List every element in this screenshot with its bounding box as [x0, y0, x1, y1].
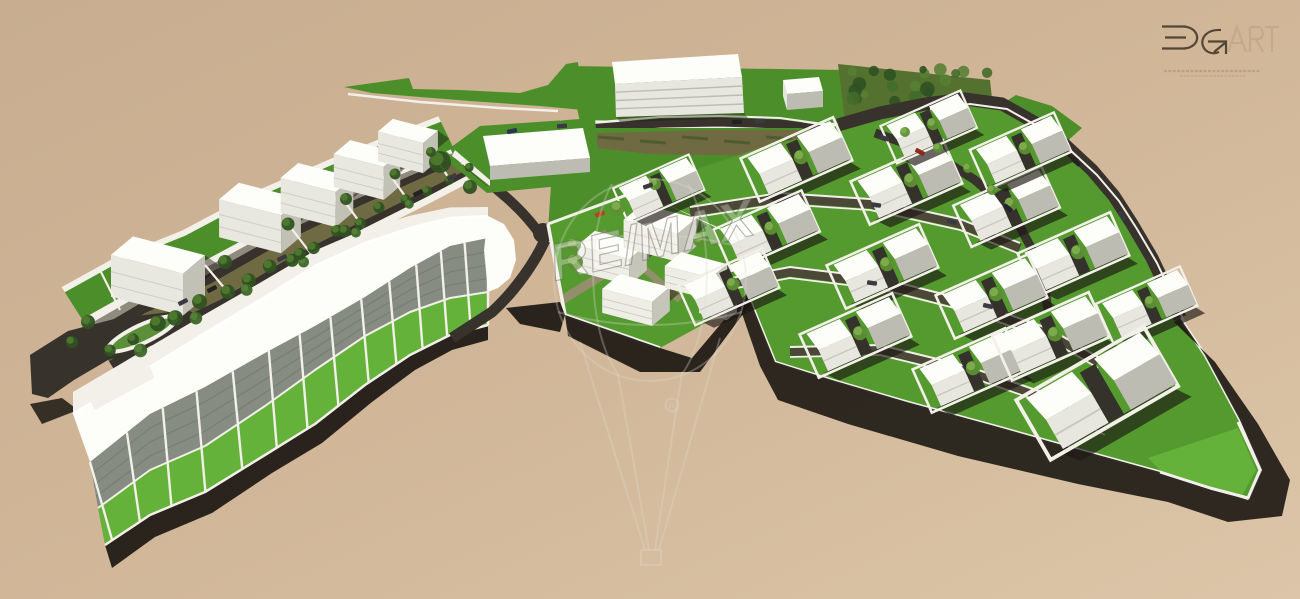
- svg-text:R: R: [669, 401, 675, 411]
